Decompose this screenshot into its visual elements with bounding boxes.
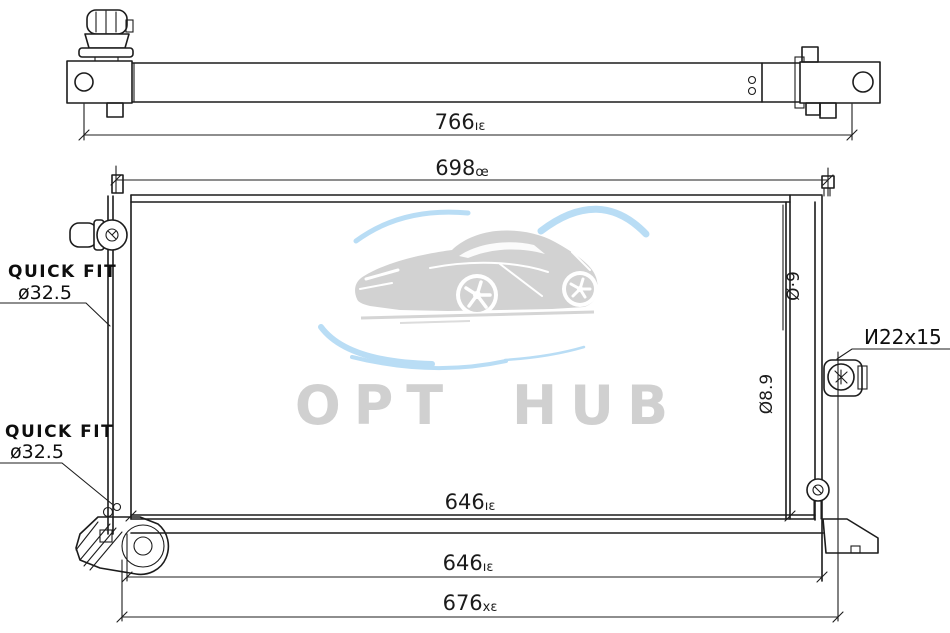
dim-text-rotated-lower: Ø8.9 [757, 374, 777, 414]
car-silhouette [355, 230, 598, 323]
dim-text-rotated-upper: Ø·9 [784, 271, 804, 301]
left-block-tab [107, 103, 123, 117]
car-rear-wheel [562, 271, 598, 307]
bracket-port [122, 525, 164, 567]
top-bar-hole [749, 88, 756, 95]
top-bar [132, 63, 800, 102]
leader-line [0, 303, 110, 326]
bracket-port-inner [134, 537, 152, 555]
quick-fit-label-upper: QUICK FIT ø32.5 [0, 262, 117, 326]
drawing-page: OPT HUB [0, 0, 950, 633]
quick-fit-size: ø32.5 [10, 441, 64, 463]
right-end-block [800, 62, 880, 103]
swoosh-arc-bottom-right [505, 347, 584, 360]
right-bottom-bracket [823, 519, 878, 553]
leader-line [837, 349, 950, 359]
filler-cap-flange [79, 48, 133, 57]
swoosh-arc-bottom-left [321, 327, 432, 364]
top-view [67, 10, 880, 118]
quick-fit-stub-hole [114, 504, 121, 511]
filler-cap-neck [85, 34, 129, 48]
right-block-bottom-tab [820, 103, 836, 118]
dim-text-698: 698œ [435, 156, 488, 180]
quick-fit-pipe [70, 223, 97, 247]
car-ground-line [400, 321, 470, 323]
quick-fit-connector-lower [104, 504, 121, 517]
top-bar-hole [749, 77, 756, 84]
swoosh-arc-top-right [541, 209, 646, 234]
quick-fit-title: QUICK FIT [5, 422, 114, 442]
left-top-tab [112, 175, 123, 193]
bracket-notch [851, 546, 860, 553]
quick-fit-size: ø32.5 [18, 282, 72, 304]
quick-fit-label-lower: QUICK FIT ø32.5 [0, 422, 114, 504]
swoosh-arc-top-left [356, 212, 468, 241]
dim-text-676: 676xɛ [443, 591, 498, 615]
drain-valve [807, 479, 829, 519]
core-right-edge [786, 195, 790, 519]
dimensions: 766ıɛ 698œ 646ıɛ 646ıɛ 676xɛ Ø·9 Ø8.9 [79, 104, 857, 622]
thread-spec-text: И22x15 [864, 325, 942, 349]
core-bottom-edge [131, 515, 823, 533]
filler-cap-dome [87, 10, 127, 34]
leader-line [0, 463, 112, 504]
dim-text-646-lower: 646ıɛ [443, 551, 494, 575]
technical-drawing-canvas: OPT HUB [0, 0, 950, 633]
thread-spec-label: И22x15 [837, 325, 950, 359]
filler-cap [79, 10, 133, 61]
dim-text-766: 766ıɛ [435, 110, 486, 134]
bracket-hatching [76, 522, 122, 570]
right-block-bottom-tab [806, 103, 820, 115]
left-end-block [67, 61, 132, 103]
watermark: OPT HUB [295, 209, 681, 437]
dim-text-646-inner: 646ıɛ [445, 490, 496, 514]
right-top-tab-stem [824, 188, 830, 196]
quick-fit-title: QUICK FIT [8, 262, 117, 282]
thread-fitting [824, 360, 867, 396]
watermark-brand-text: OPT HUB [295, 374, 681, 437]
car-front-wheel [456, 274, 498, 316]
core-top-edge [131, 195, 822, 202]
quick-fit-connector-upper [70, 220, 127, 250]
right-tank [815, 196, 822, 581]
